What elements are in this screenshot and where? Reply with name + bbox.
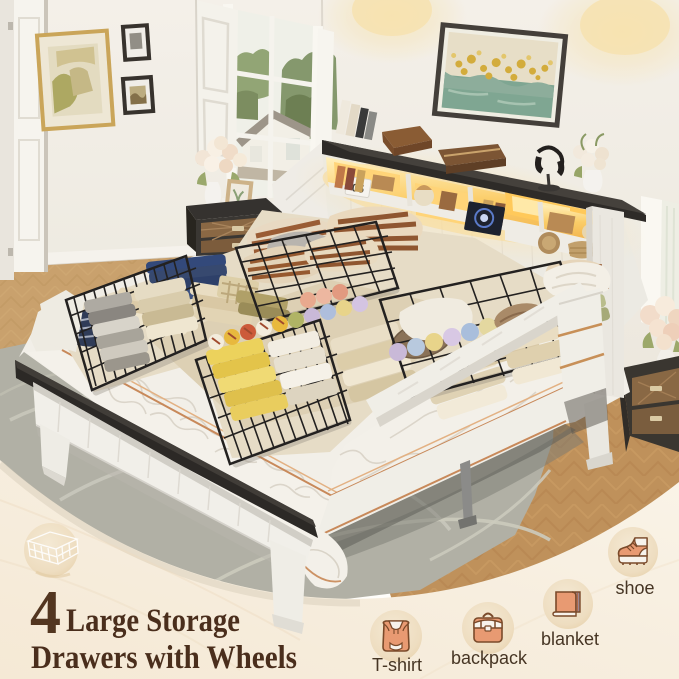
svg-text:backpack: backpack xyxy=(451,648,528,668)
svg-text:blanket: blanket xyxy=(541,629,599,649)
svg-text:4: 4 xyxy=(30,579,61,647)
svg-text:T-shirt: T-shirt xyxy=(372,655,422,675)
svg-text:shoe: shoe xyxy=(615,578,654,598)
svg-text:Drawers with Wheels: Drawers with Wheels xyxy=(31,640,297,676)
svg-text:Large Storage: Large Storage xyxy=(66,603,240,639)
